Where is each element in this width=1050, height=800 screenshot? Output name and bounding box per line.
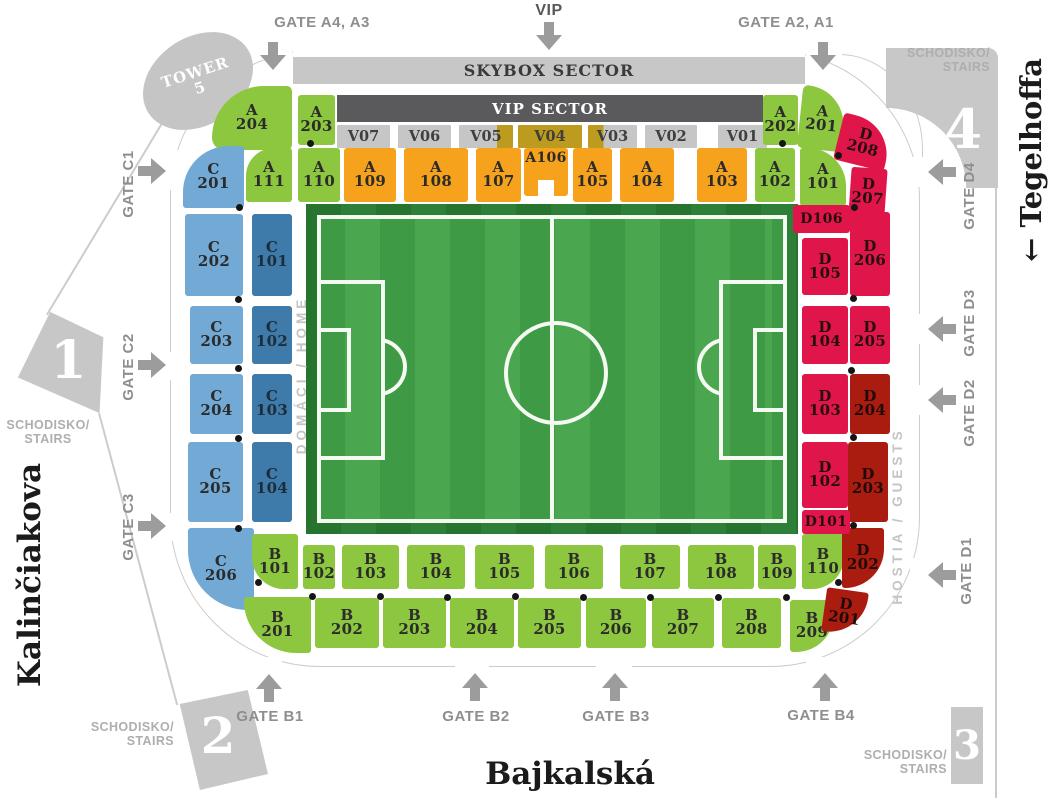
stairs-block-3: 3: [951, 707, 983, 784]
gate-vip-arrow-icon: [536, 22, 562, 50]
section-D106[interactable]: D106: [793, 205, 850, 233]
section-B107[interactable]: B107: [620, 545, 680, 589]
street-edge-line-bottomleft: [99, 413, 179, 705]
aisle-dot: [307, 140, 314, 147]
gate-b4-arrow-icon: [812, 673, 838, 701]
gate-b1-arrow-icon: [256, 674, 282, 702]
pitch-center-circle: [504, 321, 608, 425]
corner-number-3: 3: [953, 726, 981, 766]
gate-a2-a1-label: GATE A2, A1: [716, 12, 856, 32]
section-C204[interactable]: C204: [190, 374, 243, 434]
vip-box-V05[interactable]: V05: [459, 125, 513, 148]
stairs-block-1: 1: [15, 305, 110, 420]
section-C205[interactable]: C205: [188, 442, 243, 522]
gate-c3-arrow-icon: [138, 513, 166, 539]
section-C104[interactable]: C104: [252, 442, 292, 522]
penalty-arc-left: [385, 337, 407, 397]
section-A110[interactable]: A110: [298, 148, 340, 202]
section-D203[interactable]: D203: [848, 442, 888, 522]
section-C102[interactable]: C102: [252, 306, 292, 364]
aisle-dot: [444, 594, 451, 601]
section-D102[interactable]: D102: [802, 442, 848, 508]
section-B208[interactable]: B208: [722, 598, 781, 648]
section-A102[interactable]: A102: [755, 148, 795, 202]
aisle-dot: [835, 152, 842, 159]
section-A111[interactable]: A111: [246, 148, 292, 202]
line-gap: [806, 657, 842, 673]
aisle-dot: [580, 594, 587, 601]
aisle-dot: [851, 204, 858, 211]
aisle-dot: [235, 365, 242, 372]
section-B205[interactable]: B205: [518, 598, 581, 648]
section-D206[interactable]: D206: [850, 212, 890, 296]
aisle-dot: [309, 593, 316, 600]
gate-d4-label: GATE D4: [959, 126, 979, 266]
penalty-arc-right: [697, 337, 719, 397]
gate-d1-label: GATE D1: [956, 501, 976, 641]
gate-d3-arrow-icon: [928, 316, 956, 342]
gate-d1-arrow-icon: [928, 562, 956, 588]
gate-c1-arrow-icon: [138, 158, 166, 184]
vip-box-V01[interactable]: V01: [718, 125, 767, 148]
skybox-sector-label: SKYBOX SECTOR: [464, 61, 635, 80]
aisle-dot: [647, 594, 654, 601]
gate-c1-label: GATE C1: [118, 114, 138, 254]
gate-d4-arrow-icon: [928, 159, 956, 185]
tower-5-label: TOWER5: [160, 55, 236, 107]
street-kalinciakova: Kalinčiakova: [12, 445, 48, 705]
gate-d2-label: GATE D2: [959, 343, 979, 483]
stadium-seating-map: 1 2 3 4 TOWER5 SCHODISKO/STAIRS SCHODISK…: [0, 0, 1050, 800]
section-B206[interactable]: B206: [586, 598, 646, 648]
stairs-block-2: 2: [176, 690, 268, 790]
gate-b2-arrow-icon: [462, 673, 488, 701]
guests-side-label: HOSTIA / GUESTS: [888, 366, 906, 666]
stairs-label-top-right: SCHODISKO/STAIRS: [878, 46, 990, 75]
section-D103[interactable]: D103: [802, 374, 848, 434]
gate-vip-label: VIP: [479, 1, 619, 21]
section-B202[interactable]: B202: [315, 598, 379, 648]
section-B105[interactable]: B105: [475, 545, 534, 589]
line-gap: [910, 558, 926, 592]
tunnel-notch: [538, 180, 554, 196]
section-C203[interactable]: C203: [190, 306, 243, 364]
gate-a2-a1-arrow-icon: [810, 42, 836, 70]
aisle-dot: [779, 140, 786, 147]
gate-a4-a3-label: GATE A4, A3: [252, 12, 392, 32]
section-A104[interactable]: A104: [620, 148, 674, 202]
section-A103[interactable]: A103: [697, 148, 747, 202]
goal-box-right: [753, 328, 783, 412]
section-D205[interactable]: D205: [850, 306, 890, 364]
section-C103[interactable]: C103: [252, 374, 292, 434]
section-A107[interactable]: A107: [476, 148, 521, 202]
gate-b4-label: GATE B4: [751, 705, 891, 725]
aisle-dot: [835, 579, 842, 586]
aisle-dot: [783, 594, 790, 601]
stairs-label-bottom-right: SCHODISKO/STAIRS: [845, 748, 947, 777]
aisle-dot: [850, 434, 857, 441]
gate-c2-arrow-icon: [138, 352, 166, 378]
line-gap: [248, 657, 282, 673]
section-A109[interactable]: A109: [344, 148, 396, 202]
aisle-dot: [235, 525, 242, 532]
section-B106[interactable]: B106: [545, 545, 603, 589]
line-gap: [596, 657, 632, 673]
vip-box-V02[interactable]: V02: [645, 125, 697, 148]
section-C202[interactable]: C202: [185, 214, 243, 296]
vip-box-V04[interactable]: V04: [518, 125, 582, 148]
street-tegelhoffa: ← Tegelhoffa: [1013, 30, 1049, 290]
line-gap: [455, 657, 489, 673]
section-B207[interactable]: B207: [652, 598, 714, 648]
section-B104[interactable]: B104: [407, 545, 465, 589]
gate-d2-arrow-icon: [928, 387, 956, 413]
section-B102[interactable]: B102: [303, 545, 335, 589]
section-A203[interactable]: A203: [298, 95, 335, 145]
line-gap: [910, 385, 926, 415]
aisle-dot: [850, 522, 857, 529]
line-gap: [910, 314, 926, 344]
section-B203[interactable]: B203: [383, 598, 446, 648]
aisle-dot: [715, 594, 722, 601]
aisle-dot: [512, 593, 519, 600]
vip-box-V07[interactable]: V07: [337, 125, 390, 148]
home-side-label: DOMÁCI / HOME: [292, 245, 310, 505]
gate-b1-label: GATE B1: [200, 706, 340, 726]
aisle-dot: [255, 579, 262, 586]
gate-b2-label: GATE B2: [406, 706, 546, 726]
goal-box-left: [321, 328, 351, 412]
section-B108[interactable]: B108: [688, 545, 754, 589]
gate-c3-label: GATE C3: [118, 457, 138, 597]
vip-box-V06[interactable]: V06: [398, 125, 451, 148]
aisle-dot: [236, 204, 243, 211]
section-A105[interactable]: A105: [573, 148, 612, 202]
section-D204[interactable]: D204: [850, 374, 890, 434]
gate-a4-a3-arrow-icon: [260, 42, 286, 70]
section-B109[interactable]: B109: [758, 545, 796, 589]
vip-sector-label: VIP SECTOR: [492, 100, 608, 118]
section-C101[interactable]: C101: [252, 214, 292, 296]
skybox-sector[interactable]: SKYBOX SECTOR: [293, 57, 805, 84]
vip-box-V03[interactable]: V03: [588, 125, 637, 148]
section-B204[interactable]: B204: [450, 598, 514, 648]
football-pitch: [306, 204, 798, 534]
gate-b3-label: GATE B3: [546, 706, 686, 726]
section-B103[interactable]: B103: [342, 545, 399, 589]
aisle-dot: [850, 295, 857, 302]
pitch-playing-area: [317, 215, 787, 523]
stairs-label-bottom-left: SCHODISKO/STAIRS: [76, 720, 174, 749]
gate-c2-label: GATE C2: [118, 297, 138, 437]
section-A108[interactable]: A108: [404, 148, 468, 202]
corner-number-1: 1: [50, 335, 86, 387]
stairs-label-left: SCHODISKO/STAIRS: [0, 418, 96, 447]
section-D101[interactable]: D101: [802, 510, 850, 534]
section-D104[interactable]: D104: [802, 306, 848, 364]
aisle-dot: [848, 367, 855, 374]
vip-sector[interactable]: VIP SECTOR: [337, 95, 763, 122]
aisle-dot: [235, 435, 242, 442]
gate-b3-arrow-icon: [602, 673, 628, 701]
section-A202[interactable]: A202: [763, 95, 798, 145]
aisle-dot: [377, 593, 384, 600]
street-bajkalska: Bajkalská: [440, 756, 700, 792]
section-D105[interactable]: D105: [802, 238, 848, 295]
aisle-dot: [235, 296, 242, 303]
